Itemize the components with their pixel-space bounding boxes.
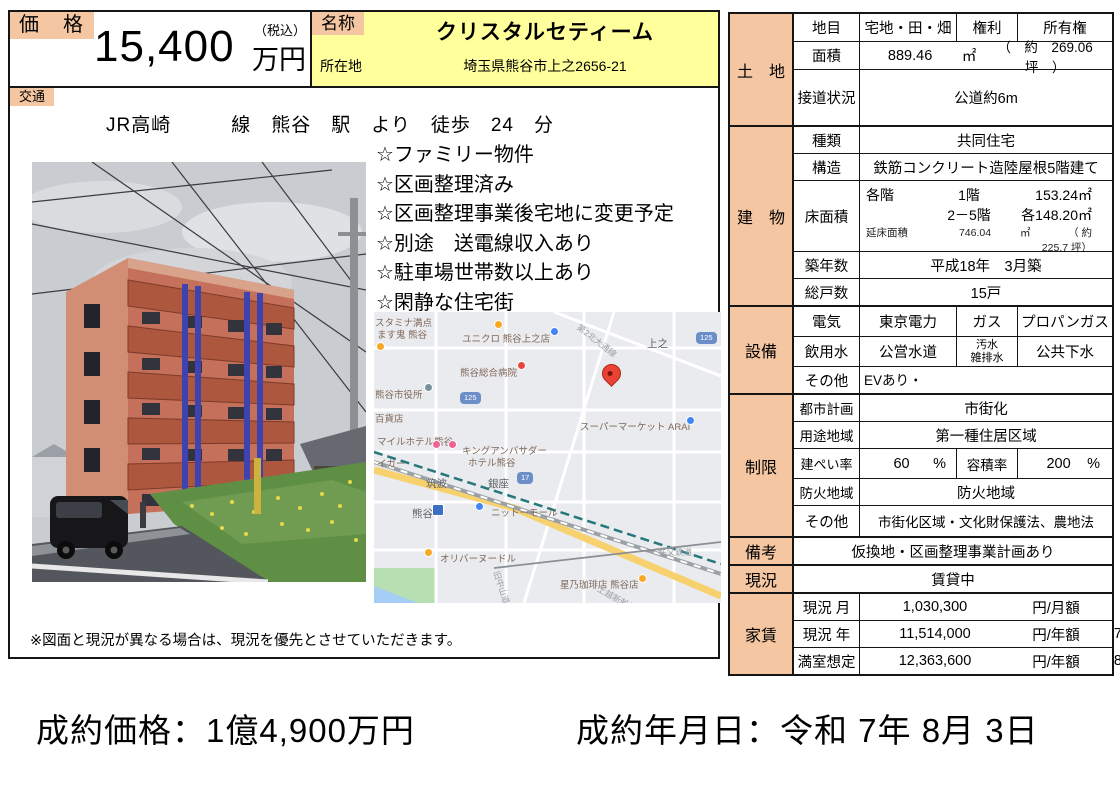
full-occupancy-yield: 8.02 bbox=[1102, 653, 1120, 669]
restrictions-other-value: 市街化区域・文化財保護法、農地法 bbox=[860, 506, 1112, 536]
each-floor-label: 各階 bbox=[866, 185, 924, 205]
poi-pin-icon bbox=[376, 342, 385, 351]
map-label: 筑波 bbox=[426, 479, 447, 490]
building-section: 建 物 種類 共同住宅 構造 鉄筋コンクリート造陸屋根5階建て 床面積 各階 1… bbox=[730, 125, 1112, 305]
map-label: ニットーモール bbox=[491, 509, 558, 519]
name-label: 名称 bbox=[312, 12, 364, 35]
transit-label: 交通 bbox=[10, 88, 54, 106]
name-box: 名称 クリスタルセティーム 所在地 埼玉県熊谷市上之2656-21 bbox=[312, 12, 718, 88]
utilities-other-label: その他 bbox=[794, 367, 860, 393]
feature-list: ☆ファミリー物件☆区画整理済み☆区画整理事業後宅地に変更予定☆別途 送電線収入あ… bbox=[376, 141, 721, 318]
building-type-value: 共同住宅 bbox=[860, 127, 1112, 153]
monthly-rent-value: 1,030,300 円/月額 bbox=[860, 594, 1112, 620]
map-label: 銀座 bbox=[488, 479, 509, 490]
land-section: 土 地 地目 宅地・田・畑 権利 所有権 面積 889.46 ㎡ （ 約 269… bbox=[730, 14, 1112, 125]
floor1-area: 153.24㎡ bbox=[1014, 185, 1106, 205]
sewage-value: 公共下水 bbox=[1018, 337, 1112, 366]
map-label: イガー bbox=[377, 460, 406, 470]
restrictions-section: 制限 都市計画 市街化 用途地域 第一種住居区域 建ぺい率 60 % 容積率 2… bbox=[730, 393, 1112, 536]
rent-section-label: 家賃 bbox=[730, 594, 794, 674]
total-floor-area-number: 746.04 bbox=[930, 227, 1020, 239]
fire-zone-label: 防火地域 bbox=[794, 479, 860, 505]
fire-zone-value: 防火地域 bbox=[860, 479, 1112, 505]
poi-pin-icon bbox=[432, 440, 441, 449]
far-number: 200 bbox=[1030, 456, 1087, 472]
map-label: スタミナ満点 bbox=[375, 319, 432, 329]
disclaimer-note: ※図面と現況が異なる場合は、現況を優先とさせていただきます。 bbox=[30, 629, 461, 650]
current-status-value: 賃貸中 bbox=[794, 566, 1112, 592]
feature-item: ☆駐車場世帯数以上あり bbox=[376, 259, 721, 289]
remarks-section: 備考 仮換地・区画整理事業計画あり bbox=[730, 536, 1112, 564]
poi-pin-icon bbox=[448, 440, 457, 449]
land-area-unit: ㎡ bbox=[952, 45, 986, 66]
feature-item: ☆区画整理済み bbox=[376, 171, 721, 201]
land-area-number: 889.46 bbox=[868, 48, 952, 64]
address-label: 所在地 bbox=[320, 56, 362, 76]
floor-area-label: 床面積 bbox=[794, 181, 860, 251]
monthly-rent-amount: 1,030,300 bbox=[860, 599, 1010, 615]
map-label: 上之 bbox=[647, 339, 668, 350]
spec-table: 土 地 地目 宅地・田・畑 権利 所有権 面積 889.46 ㎡ （ 約 269… bbox=[728, 12, 1114, 676]
land-category-label: 地目 bbox=[794, 14, 860, 41]
water-value: 公営水道 bbox=[860, 337, 957, 366]
far-unit: % bbox=[1087, 456, 1100, 472]
electric-label: 電気 bbox=[794, 307, 860, 336]
map-label: ます鬼 熊谷 bbox=[377, 331, 427, 341]
property-name: クリスタルセティーム bbox=[372, 16, 718, 46]
poi-pin-icon bbox=[424, 548, 433, 557]
current-status-section: 現況 賃貸中 bbox=[730, 564, 1112, 592]
utilities-section: 設備 電気 東京電力 ガス プロパンガス 飲用水 公営水道 汚水 雑排水 公共下… bbox=[730, 305, 1112, 393]
price-box: 価 格 15,400 （税込） 万円 bbox=[10, 12, 312, 88]
map-label: 百貨店 bbox=[375, 415, 404, 425]
city-planning-label: 都市計画 bbox=[794, 395, 860, 421]
property-address: 埼玉県熊谷市上之2656-21 bbox=[372, 56, 718, 76]
map-background bbox=[374, 312, 721, 603]
poi-pin-icon bbox=[686, 416, 695, 425]
full-occupancy-value: 12,363,600 円/年額 8.02 % bbox=[860, 648, 1112, 674]
map-label: 秩父鉄道 bbox=[658, 548, 692, 557]
road-access-value: 公道約6m bbox=[860, 70, 1112, 125]
electric-value: 東京電力 bbox=[860, 307, 957, 336]
restrictions-other-label: その他 bbox=[794, 506, 860, 536]
poi-pin-icon bbox=[475, 502, 484, 511]
total-floor-area-label: 延床面積 bbox=[866, 225, 930, 240]
gas-value: プロパンガス bbox=[1018, 307, 1112, 336]
map-label: ホテル熊谷 bbox=[468, 459, 516, 469]
price-unit: 万円 bbox=[252, 38, 306, 77]
coverage-ratio-label: 建ぺい率 bbox=[794, 449, 860, 478]
annual-rent-label: 現況 年 bbox=[794, 621, 860, 647]
total-units-value: 15戸 bbox=[860, 279, 1112, 305]
gas-label: ガス bbox=[957, 307, 1018, 336]
building-section-label: 建 物 bbox=[730, 127, 794, 305]
price-label: 価 格 bbox=[10, 12, 94, 39]
annual-rent-unit: 円/年額 bbox=[1010, 624, 1102, 645]
closing-date: 成約年月日：令和 7年 8月 3日 bbox=[576, 704, 1039, 752]
far-value: 200 % bbox=[1018, 449, 1112, 478]
building-type-label: 種類 bbox=[794, 127, 860, 153]
price-tax-note: （税込） bbox=[254, 20, 306, 39]
poi-pin-icon bbox=[638, 574, 647, 583]
utilities-other-value: EVあり・ bbox=[860, 367, 1112, 393]
map-label: 熊谷 bbox=[412, 509, 433, 520]
total-floor-area-unit: ㎡ bbox=[1020, 225, 1031, 240]
rent-section: 家賃 現況 月 1,030,300 円/月額 現況 年 11,514,000 円… bbox=[730, 592, 1112, 674]
sewage-label: 汚水 雑排水 bbox=[957, 337, 1018, 366]
annual-rent-value: 11,514,000 円/年額 7.22 % bbox=[860, 621, 1112, 647]
listing-sheet: 価 格 15,400 （税込） 万円 名称 クリスタルセティーム 所在地 埼玉県… bbox=[8, 10, 720, 659]
poi-pin-icon bbox=[517, 361, 526, 370]
coverage-ratio-value: 60 % bbox=[860, 449, 957, 478]
floor-area-value: 各階 1階 153.24㎡ 2－5階 各148.20㎡ 延床面積 746.04 … bbox=[860, 181, 1112, 251]
land-section-label: 土 地 bbox=[730, 14, 794, 125]
remarks-value: 仮換地・区画整理事業計画あり bbox=[794, 538, 1112, 564]
map-label: キングアンバサダー bbox=[462, 447, 547, 457]
land-category-value: 宅地・田・畑 bbox=[860, 14, 957, 41]
structure-label: 構造 bbox=[794, 154, 860, 180]
location-map: スタミナ満点ます鬼 熊谷ユニクロ 熊谷上之店上之第2北大通線熊谷総合病院熊谷市役… bbox=[374, 312, 721, 603]
full-occupancy-unit: 円/年額 bbox=[1010, 651, 1102, 672]
land-area-label: 面積 bbox=[794, 42, 860, 69]
building-photo bbox=[32, 162, 366, 582]
annual-rent-amount: 11,514,000 bbox=[860, 626, 1010, 642]
map-label: マイルホテル熊谷 bbox=[377, 438, 453, 448]
feature-item: ☆区画整理事業後宅地に変更予定 bbox=[376, 200, 721, 230]
poi-pin-icon bbox=[494, 320, 503, 329]
current-status-label: 現況 bbox=[730, 566, 794, 592]
zoning-value: 第一種住居区域 bbox=[860, 422, 1112, 448]
road-access-label: 接道状況 bbox=[794, 70, 860, 125]
annual-yield: 7.22 bbox=[1102, 626, 1120, 642]
building-age-label: 築年数 bbox=[794, 252, 860, 278]
map-label: 熊谷市役所 bbox=[375, 391, 423, 401]
map-label: 熊谷総合病院 bbox=[460, 369, 517, 379]
floors2-5-label: 2－5階 bbox=[924, 205, 1014, 225]
water-label: 飲用水 bbox=[794, 337, 860, 366]
route-badge: 125 bbox=[696, 332, 717, 344]
map-label: ユニクロ 熊谷上之店 bbox=[462, 335, 550, 345]
monthly-rent-label: 現況 月 bbox=[794, 594, 860, 620]
coverage-ratio-unit: % bbox=[933, 456, 946, 472]
feature-item: ☆ファミリー物件 bbox=[376, 141, 721, 171]
remarks-label: 備考 bbox=[730, 538, 794, 564]
total-units-label: 総戸数 bbox=[794, 279, 860, 305]
floor1-label: 1階 bbox=[924, 185, 1014, 205]
restrictions-section-label: 制限 bbox=[730, 395, 794, 536]
building-age-value: 平成18年 3月築 bbox=[860, 252, 1112, 278]
floors2-5-area: 各148.20㎡ bbox=[1014, 205, 1106, 225]
route-badge: 125 bbox=[460, 392, 481, 404]
zoning-label: 用途地域 bbox=[794, 422, 860, 448]
train-station-icon bbox=[432, 504, 444, 516]
full-occupancy-label: 満室想定 bbox=[794, 648, 860, 674]
far-label: 容積率 bbox=[957, 449, 1018, 478]
monthly-rent-unit: 円/月額 bbox=[1010, 597, 1102, 618]
price-value: 15,400 bbox=[94, 22, 235, 72]
closing-price: 成約価格：1億4,900万円 bbox=[36, 704, 415, 752]
coverage-ratio-number: 60 bbox=[870, 456, 933, 472]
transit-text: JR高崎 線 熊谷 駅 より 徒歩 24 分 bbox=[106, 110, 554, 137]
poi-pin-icon bbox=[424, 383, 433, 392]
land-area-value: 889.46 ㎡ （ 約 269.06 坪 ） bbox=[860, 42, 1112, 69]
feature-item: ☆別途 送電線収入あり bbox=[376, 230, 721, 260]
map-label: スーパーマーケット ARAI bbox=[580, 423, 690, 433]
poi-pin-icon bbox=[550, 327, 559, 336]
building-photo-illustration bbox=[32, 162, 366, 582]
structure-value: 鉄筋コンクリート造陸屋根5階建て bbox=[860, 154, 1112, 180]
city-planning-value: 市街化 bbox=[860, 395, 1112, 421]
route-badge: 17 bbox=[517, 472, 533, 484]
map-label: オリバーヌードル bbox=[440, 555, 516, 565]
full-occupancy-amount: 12,363,600 bbox=[860, 653, 1010, 669]
utilities-section-label: 設備 bbox=[730, 307, 794, 393]
